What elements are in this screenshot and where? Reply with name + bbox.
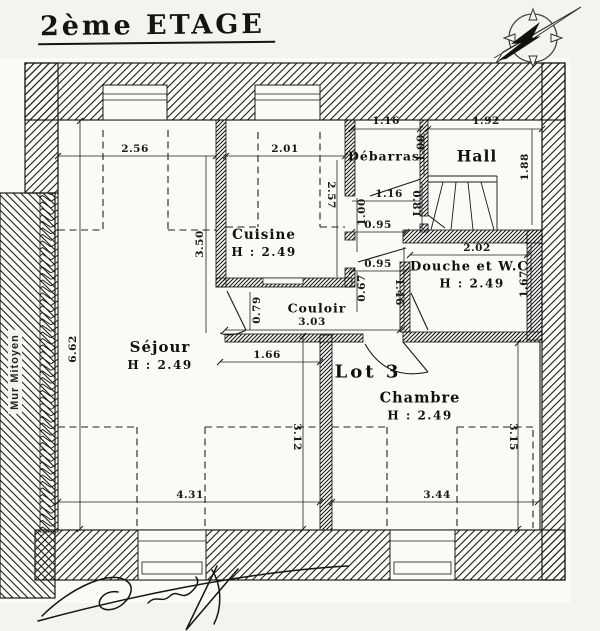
floor-plan-page: 2ème ETAGE Mur Mitoyen Lot 3 2.562.011.1… xyxy=(0,0,600,631)
party-wall-chevron-band xyxy=(40,193,58,532)
bottom-wall xyxy=(35,530,565,580)
couloir-niche xyxy=(263,278,303,284)
floor-plan-drawing xyxy=(0,0,600,631)
plan-paper xyxy=(0,58,570,603)
right-wall xyxy=(542,63,565,580)
